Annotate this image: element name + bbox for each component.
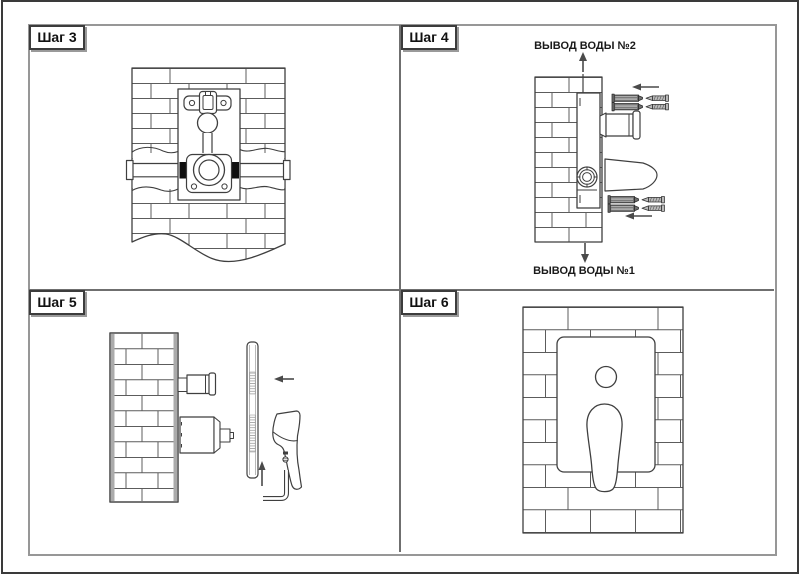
step-5-panel xyxy=(110,333,302,502)
wall-plug-icon xyxy=(612,94,643,102)
step-3-panel xyxy=(127,68,291,261)
fixings-top-group xyxy=(612,84,668,111)
wall-plug-icon xyxy=(612,103,643,111)
diverter-knob-icon xyxy=(596,367,617,388)
up-arrow-icon xyxy=(579,52,587,72)
wall-plug-icon xyxy=(608,204,639,212)
screw-icon xyxy=(646,95,668,101)
left-arrow-icon xyxy=(274,376,294,383)
cartridge-valve xyxy=(180,417,234,453)
fixings-bottom-group xyxy=(608,196,664,220)
escutcheon-plate-icon xyxy=(247,342,258,478)
screw-icon xyxy=(642,205,664,211)
up-arrow-icon xyxy=(259,461,266,486)
wall-plug-icon xyxy=(608,196,639,204)
spout-outlet-port xyxy=(178,373,216,395)
water-outlet-2-caption: ВЫВОД ВОДЫ №2 xyxy=(534,40,636,52)
brick-wall-side-icon xyxy=(110,333,178,502)
screw-icon xyxy=(646,104,668,110)
step-4-panel: ВЫВОД ВОДЫ №2 xyxy=(533,40,668,277)
instruction-sheet: Шаг 3 Шаг 4 Шаг 5 Шаг 6 xyxy=(0,0,800,578)
step-6-panel xyxy=(523,307,683,533)
left-arrow-icon xyxy=(625,213,652,220)
valve-body xyxy=(187,155,232,193)
protective-cap-icon xyxy=(605,159,657,191)
water-outlet-1-caption: ВЫВОД ВОДЫ №1 xyxy=(533,265,635,277)
allen-key-icon xyxy=(263,470,287,499)
down-arrow-icon xyxy=(581,243,589,263)
installation-diagram: ВЫВОД ВОДЫ №2 xyxy=(0,0,800,578)
step-4-label: Шаг 4 xyxy=(401,25,457,50)
step-6-label: Шаг 6 xyxy=(401,290,457,315)
screw-icon xyxy=(642,197,664,203)
step-5-label: Шаг 5 xyxy=(29,290,85,315)
step-3-label: Шаг 3 xyxy=(29,25,85,50)
left-arrow-icon xyxy=(632,84,659,91)
